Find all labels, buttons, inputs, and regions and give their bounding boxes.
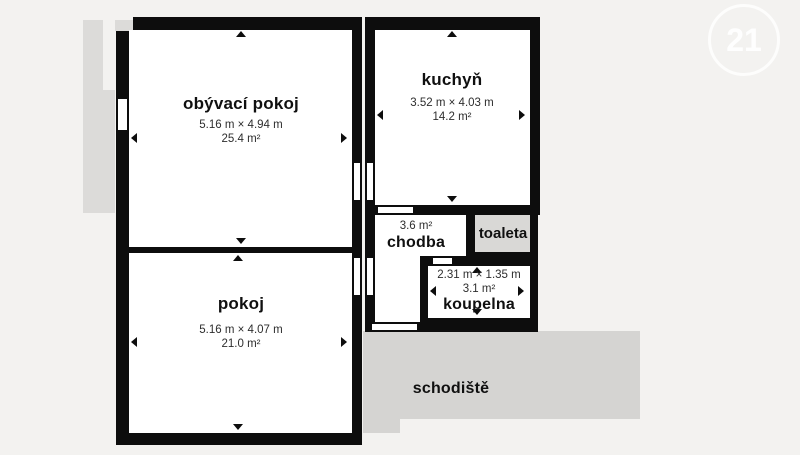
label-toaleta: toaleta (466, 215, 540, 252)
room-name: schodiště (381, 379, 521, 398)
label-pokoj: pokoj 5.16 m × 4.07 m 21.0 m² (141, 294, 341, 351)
room-dimensions: 5.16 m × 4.94 m (141, 118, 341, 132)
door-opening-pokoj-right (352, 258, 362, 295)
label-obyvaci-pokoj: obývací pokoj 5.16 m × 4.94 m 25.4 m² (141, 94, 341, 146)
arrow-down-icon (233, 424, 243, 430)
exterior-gray-upper-left (83, 20, 103, 90)
door-opening-kitchen-left (365, 163, 375, 200)
label-chodba: 3.6 m² chodba (365, 219, 467, 252)
arrow-right-icon (341, 133, 347, 143)
room-name: obývací pokoj (141, 94, 341, 114)
door-opening-koupelna-top (433, 256, 452, 266)
arrow-up-icon (447, 31, 457, 37)
arrow-down-icon (447, 196, 457, 202)
room-name: toaleta (479, 225, 527, 242)
room-name: chodba (365, 233, 467, 252)
arrow-right-icon (341, 337, 347, 347)
room-name: kuchyň (372, 70, 532, 90)
room-dimensions: 5.16 m × 4.07 m (141, 323, 341, 337)
arrow-left-icon (131, 133, 137, 143)
arrow-left-icon (131, 337, 137, 347)
staircase-area-tail (363, 419, 400, 433)
window-opening-living-left (116, 99, 129, 130)
door-opening-kitchen-bottom (378, 205, 413, 215)
label-schodiste: schodiště (381, 379, 521, 398)
watermark-label: 21 (726, 22, 762, 59)
room-area: 14.2 m² (372, 110, 532, 124)
room-dimensions: 2.31 m × 1.35 m (399, 268, 559, 282)
arrow-up-icon (233, 255, 243, 261)
room-area: 3.6 m² (365, 219, 467, 233)
room-area: 3.1 m² (399, 282, 559, 296)
door-opening-living-right (352, 163, 362, 200)
label-kuchyn: kuchyň 3.52 m × 4.03 m 14.2 m² (372, 70, 532, 124)
room-name: pokoj (141, 294, 341, 314)
century21-watermark: 21 (708, 4, 780, 76)
arrow-down-icon (236, 238, 246, 244)
exterior-gray-lower-left (83, 90, 115, 213)
room-area: 25.4 m² (141, 132, 341, 146)
floor-plan: obývací pokoj 5.16 m × 4.94 m 25.4 m² ku… (0, 0, 800, 455)
door-opening-entrance (372, 322, 417, 332)
room-area: 21.0 m² (141, 337, 341, 351)
label-koupelna: 2.31 m × 1.35 m 3.1 m² koupelna (399, 268, 559, 313)
room-name: koupelna (399, 296, 559, 313)
staircase-area (363, 331, 640, 419)
room-dimensions: 3.52 m × 4.03 m (372, 96, 532, 110)
door-opening-chodba-left (365, 258, 375, 295)
arrow-up-icon (236, 31, 246, 37)
